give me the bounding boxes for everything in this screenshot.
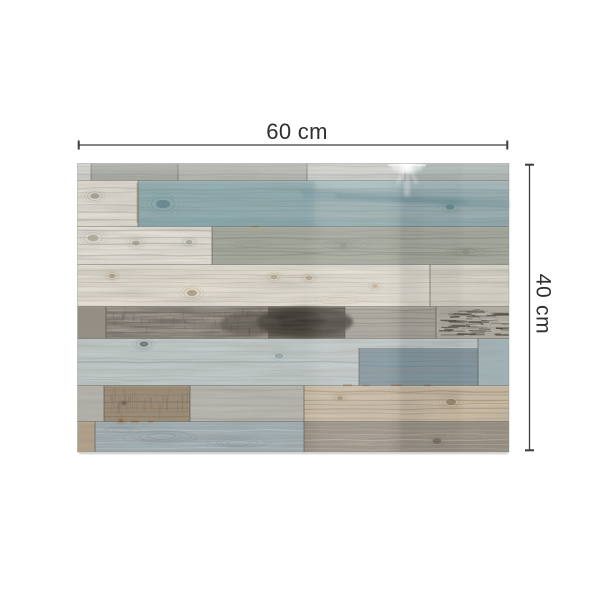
svg-text:60 cm: 60 cm (266, 119, 327, 144)
svg-text:40 cm: 40 cm (532, 274, 555, 335)
